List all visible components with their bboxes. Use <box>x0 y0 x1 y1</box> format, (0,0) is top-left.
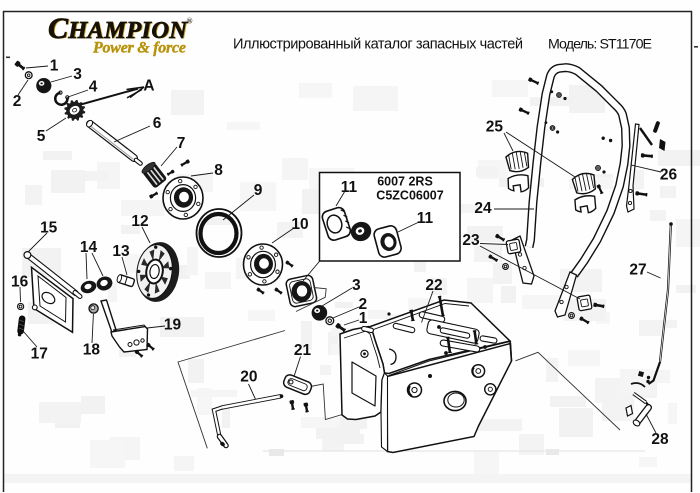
svg-text:11: 11 <box>417 210 434 227</box>
svg-text:1: 1 <box>50 58 59 75</box>
svg-text:25: 25 <box>486 119 504 136</box>
svg-text:22: 22 <box>425 277 442 294</box>
svg-text:21: 21 <box>294 342 312 359</box>
svg-text:10: 10 <box>291 216 308 233</box>
svg-text:20: 20 <box>240 368 257 385</box>
svg-text:A: A <box>143 78 154 95</box>
svg-text:9: 9 <box>254 182 263 199</box>
svg-text:28: 28 <box>651 431 669 448</box>
svg-text:1: 1 <box>359 310 368 327</box>
svg-text:14: 14 <box>80 239 98 256</box>
svg-text:Модель: ST1170E: Модель: ST1170E <box>548 37 652 53</box>
svg-text:®: ® <box>187 17 193 26</box>
svg-text:3: 3 <box>352 277 361 294</box>
svg-text:16: 16 <box>11 274 29 291</box>
svg-text:17: 17 <box>31 345 48 362</box>
svg-text:6: 6 <box>153 115 162 132</box>
svg-text:5: 5 <box>37 128 46 145</box>
svg-text:27: 27 <box>629 262 646 279</box>
svg-text:4: 4 <box>89 79 98 96</box>
svg-text:23: 23 <box>462 232 480 249</box>
svg-text:Power & force: Power & force <box>92 40 186 57</box>
svg-text:24: 24 <box>474 200 492 217</box>
svg-text:Иллюстрированный каталог запас: Иллюстрированный каталог запасных частей <box>233 37 523 53</box>
svg-text:15: 15 <box>40 220 58 237</box>
svg-text:11: 11 <box>341 179 358 196</box>
svg-text:12: 12 <box>131 213 148 230</box>
svg-text:8: 8 <box>214 162 223 179</box>
svg-text:7: 7 <box>177 135 186 152</box>
svg-text:C5ZC06007: C5ZC06007 <box>376 189 443 203</box>
svg-text:18: 18 <box>83 342 101 359</box>
svg-text:19: 19 <box>164 317 182 334</box>
svg-text:3: 3 <box>73 66 82 83</box>
svg-text:26: 26 <box>660 167 678 184</box>
svg-text:13: 13 <box>112 243 130 260</box>
svg-text:6007 2RS: 6007 2RS <box>377 175 433 189</box>
svg-text:2: 2 <box>13 93 22 110</box>
